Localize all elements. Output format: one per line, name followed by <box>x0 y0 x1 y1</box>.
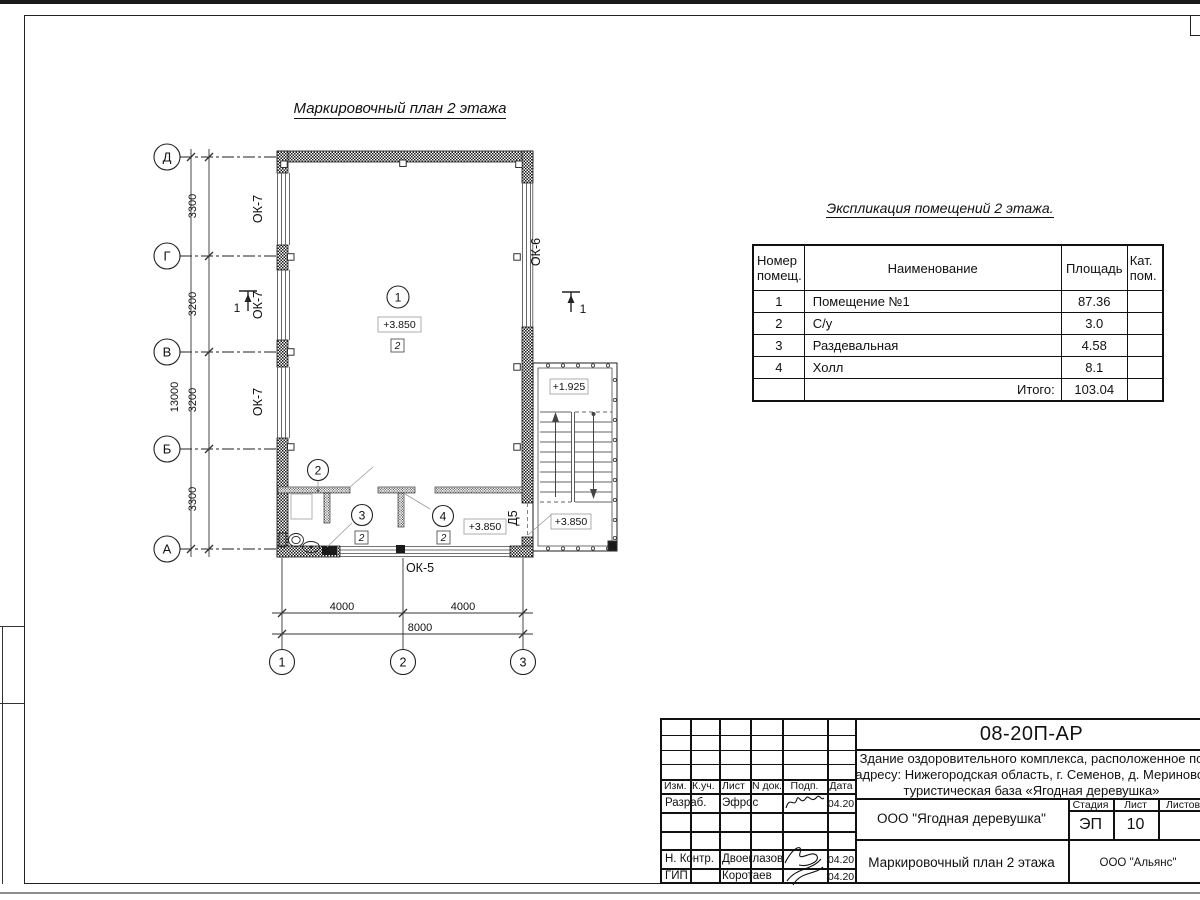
tb-doc-number: 08-20П-АР <box>855 723 1200 746</box>
window-left-1 <box>278 173 290 245</box>
shower-symbol <box>291 494 312 519</box>
tb-name: Эфрос <box>722 797 782 809</box>
tb-drawing-title: Маркировочный план 2 этажа <box>855 855 1068 870</box>
elevation-value: +3.850 <box>383 319 416 331</box>
tb-description-line: адресу: Нижегородская область, г. Семено… <box>855 767 1200 783</box>
axis-labels-left: Д Г В Б А <box>163 150 172 557</box>
cell-empty <box>1127 379 1163 402</box>
cell-area: 4.58 <box>1061 335 1127 357</box>
section-label: 1 <box>234 301 241 315</box>
window-bottom <box>340 547 510 557</box>
dim-text-total: 8000 <box>408 622 432 634</box>
cell-category <box>1127 335 1163 357</box>
leader-dot <box>317 489 320 492</box>
section-label: 1 <box>580 302 587 316</box>
dim-text: 3200 <box>187 388 199 412</box>
tb-header-ndoc: N док. <box>752 780 782 792</box>
tb-date: 04.20 <box>827 854 855 866</box>
dim-text: 4000 <box>451 601 475 613</box>
table-row: 1 Помещение №1 87.36 <box>753 291 1163 313</box>
floor-type: 2 <box>394 341 401 352</box>
exterior-walls <box>277 151 533 557</box>
axis-label: 3 <box>520 656 527 670</box>
tb-name: Коротаев <box>722 870 782 882</box>
dimension-texts-bottom: 4000 4000 8000 <box>330 601 475 634</box>
col-header-category: Кат. пом. <box>1127 245 1163 291</box>
cell-category <box>1127 313 1163 335</box>
axis-label: 1 <box>279 656 286 670</box>
signature <box>779 841 829 887</box>
elevation-value: +3.850 <box>555 516 588 528</box>
table-header-row: Номер помещ. Наименование Площадь Кат. п… <box>753 245 1163 291</box>
axis-label: А <box>163 542 172 557</box>
dim-text: 3200 <box>187 292 199 316</box>
title-block: Изм. К.уч. Лист N док. Подп. Дата Разраб… <box>660 718 1200 884</box>
floor-type: 2 <box>440 533 447 544</box>
section-mark-right <box>562 292 580 312</box>
tb-stage-value: ЭП <box>1068 816 1113 834</box>
tb-description-line: Здание оздоровительного комплекса, распо… <box>855 751 1200 767</box>
dimension-lines-bottom <box>272 558 533 649</box>
cell-area: 3.0 <box>1061 313 1127 335</box>
cell-number: 1 <box>753 291 804 313</box>
signature <box>783 792 826 814</box>
tb-line <box>855 839 1200 841</box>
tb-role: Н. Контр. <box>665 853 719 865</box>
col-header-number: Номер помещ. <box>753 245 804 291</box>
cell-name: Холл <box>804 357 1061 379</box>
room-number: 1 <box>395 291 402 305</box>
dim-text: 3300 <box>187 194 199 218</box>
cell-category <box>1127 291 1163 313</box>
elevation-value: +1.925 <box>553 381 586 393</box>
tb-sheets-label: Листов <box>1158 799 1200 811</box>
stair-flights <box>540 412 612 502</box>
elevation-marks: +3.850 +3.850 +1.925 +3.850 <box>378 317 591 534</box>
tb-date: 04.20 <box>827 871 855 883</box>
table-total-row: Итого: 103.04 <box>753 379 1163 402</box>
window-left-2 <box>278 270 290 340</box>
tb-sheet-value: 10 <box>1113 816 1158 834</box>
cell-category <box>1127 357 1163 379</box>
total-label: Итого: <box>804 379 1061 402</box>
tb-role: Разраб. <box>665 797 719 809</box>
window-tag: ОК-7 <box>251 388 265 416</box>
axis-labels-bottom: 1 2 3 <box>279 656 527 670</box>
section-marks <box>239 291 580 312</box>
tb-stage-label: Стадия <box>1068 799 1113 811</box>
tb-header-data: Дата <box>827 780 855 792</box>
stair-treads <box>540 422 612 492</box>
axis-label: Д <box>163 150 172 165</box>
windows <box>278 173 533 557</box>
tb-header-podp: Подп. <box>782 780 827 792</box>
room-schedule-table: Номер помещ. Наименование Площадь Кат. п… <box>752 244 1164 402</box>
window-tag: ОК-6 <box>529 238 543 266</box>
dim-text-total: 13000 <box>169 382 181 413</box>
table-row: 3 Раздевальная 4.58 <box>753 335 1163 357</box>
tb-header-list: Лист <box>722 780 750 792</box>
cell-number: 2 <box>753 313 804 335</box>
window-tag: ОК-5 <box>406 561 434 575</box>
tb-company: ООО "Ягодная деревушка" <box>855 811 1068 826</box>
axis-label: Б <box>163 442 172 457</box>
table-row: 2 С/у 3.0 <box>753 313 1163 335</box>
tb-name: Двоеглазов <box>722 853 782 865</box>
drawing-sheet: Маркировочный план 2 этажа Экспликация п… <box>0 0 1200 900</box>
door-tag: Д5 <box>506 510 520 525</box>
tb-description-line: туристическая база «Ягодная деревушка» <box>855 783 1200 799</box>
window-tag: ОК-7 <box>251 195 265 223</box>
cell-number: 3 <box>753 335 804 357</box>
tb-role: ГИП <box>665 870 719 882</box>
window-left-3 <box>278 367 290 438</box>
tb-date: 04.20 <box>827 798 855 810</box>
window-tag: ОК-7 <box>251 291 265 319</box>
cell-area: 87.36 <box>1061 291 1127 313</box>
table-row: 4 Холл 8.1 <box>753 357 1163 379</box>
tb-header-kuch: К.уч. <box>692 780 719 792</box>
col-header-name: Наименование <box>804 245 1061 291</box>
dim-text: 3300 <box>187 487 199 511</box>
room-number: 2 <box>315 464 322 478</box>
tb-line <box>719 720 721 882</box>
tb-contractor: ООО "Альянс" <box>1068 857 1200 869</box>
axis-label: 2 <box>400 656 407 670</box>
col-header-area: Площадь <box>1061 245 1127 291</box>
leader-lines <box>318 467 552 547</box>
axis-label: В <box>163 345 172 360</box>
axis-label: Г <box>163 249 170 264</box>
cell-area: 8.1 <box>1061 357 1127 379</box>
dim-text: 4000 <box>330 601 354 613</box>
tb-sheet-label: Лист <box>1113 799 1158 811</box>
tb-header-izm: Изм. <box>664 780 690 792</box>
cell-number: 4 <box>753 357 804 379</box>
opening-tags: ОК-7 ОК-7 ОК-7 ОК-6 ОК-5 Д5 <box>251 195 543 575</box>
room-number: 3 <box>359 509 366 523</box>
annex-corner-post <box>608 541 617 551</box>
cell-name: Раздевальная <box>804 335 1061 357</box>
cell-empty <box>753 379 804 402</box>
cell-name: Помещение №1 <box>804 291 1061 313</box>
cell-name: С/у <box>804 313 1061 335</box>
elevation-value: +3.850 <box>469 521 502 533</box>
room-number: 4 <box>440 510 447 524</box>
total-value: 103.04 <box>1061 379 1127 402</box>
dimension-texts-left: 3300 3200 3200 3300 13000 <box>169 194 199 511</box>
tb-project-description: Здание оздоровительного комплекса, распо… <box>855 751 1200 799</box>
floor-type: 2 <box>358 533 365 544</box>
